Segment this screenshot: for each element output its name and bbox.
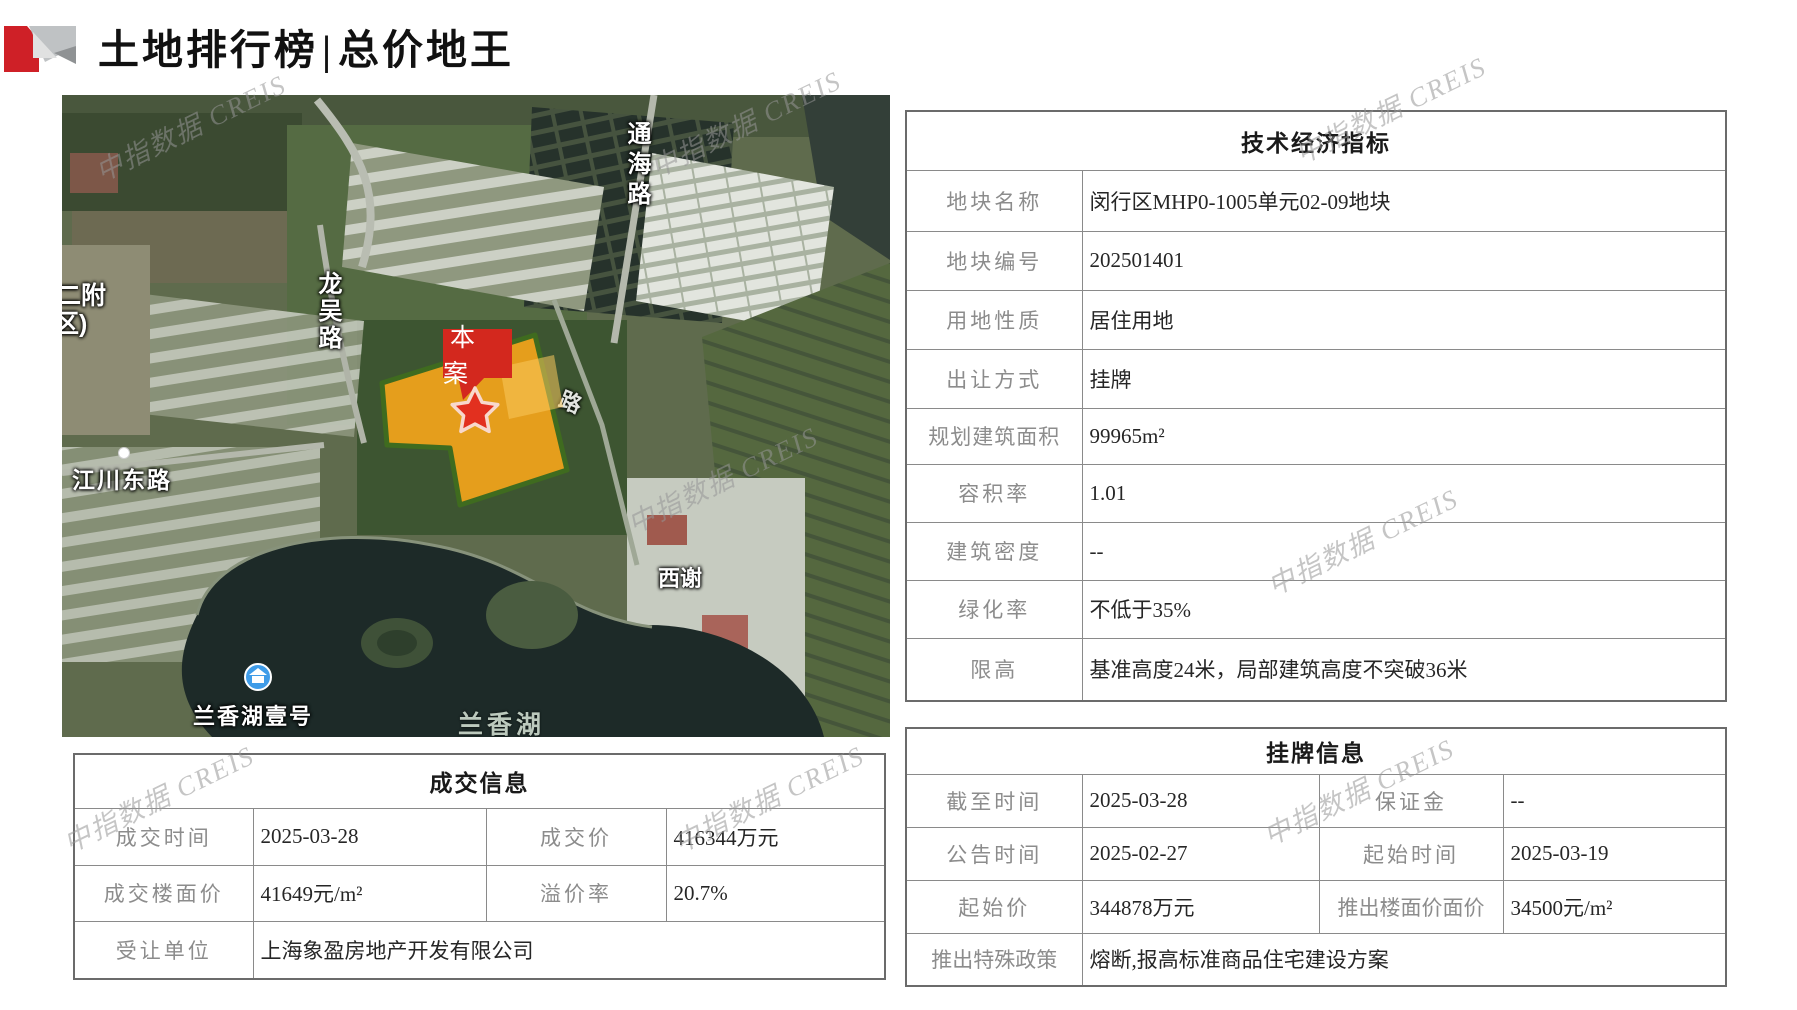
small-poi-dot-icon	[119, 448, 130, 459]
tech-indicator-table: 技术经济指标 地块名称闵行区MHP0-1005单元02-09地块 地块编号202…	[905, 110, 1727, 702]
tech-row-label: 地块名称	[906, 170, 1082, 231]
map-overlay	[62, 95, 890, 737]
listing-row-label: 推出特殊政策	[906, 933, 1082, 986]
tech-row-label: 出让方式	[906, 349, 1082, 408]
deal-row-label: 成交价	[486, 808, 666, 865]
deal-row-label: 受让单位	[74, 921, 253, 979]
listing-row-value: 2025-03-28	[1082, 774, 1319, 827]
tech-row-label: 容积率	[906, 464, 1082, 522]
title-part1: 土地排行榜	[98, 27, 318, 73]
tech-row-label: 绿化率	[906, 580, 1082, 638]
listing-row-value: 344878万元	[1082, 880, 1319, 933]
report-slide: 土地排行榜|总价地王	[0, 0, 1797, 1010]
listing-row-value: --	[1503, 774, 1726, 827]
deal-row-label: 溢价率	[486, 865, 666, 921]
listing-info-table: 挂牌信息 截至时间 2025-03-28 保证金 -- 公告时间 2025-02…	[905, 727, 1727, 987]
deal-table-title: 成交信息	[74, 754, 885, 808]
lake-poi-icon	[245, 664, 271, 690]
deal-row-value: 416344万元	[666, 808, 885, 865]
page-title: 土地排行榜|总价地王	[98, 16, 514, 76]
tech-row-value: 不低于35%	[1082, 580, 1726, 638]
listing-row-label: 起始价	[906, 880, 1082, 933]
listing-row-value: 2025-02-27	[1082, 827, 1319, 880]
title-part2: 总价地王	[338, 27, 514, 73]
deal-row-value: 20.7%	[666, 865, 885, 921]
tech-row-value: 基准高度24米，局部建筑高度不突破36米	[1082, 638, 1726, 701]
tech-row-value: 202501401	[1082, 231, 1726, 290]
tech-row-value: --	[1082, 522, 1726, 580]
deal-row-label: 成交楼面价	[74, 865, 253, 921]
listing-row-value: 34500元/m²	[1503, 880, 1726, 933]
tech-row-value: 闵行区MHP0-1005单元02-09地块	[1082, 170, 1726, 231]
tech-row-value: 挂牌	[1082, 349, 1726, 408]
creis-logo-icon	[4, 22, 96, 76]
tech-row-label: 用地性质	[906, 290, 1082, 349]
deal-row-value: 2025-03-28	[253, 808, 486, 865]
listing-row-label: 公告时间	[906, 827, 1082, 880]
tech-row-value: 1.01	[1082, 464, 1726, 522]
title-divider: |	[318, 27, 338, 73]
tech-row-label: 规划建筑面积	[906, 408, 1082, 464]
listing-row-label: 保证金	[1319, 774, 1503, 827]
satellite-map: 通海路 龙吴路 江川东路 二附 区) 西谢 兰香湖壹号 兰香湖 路 本案	[62, 95, 890, 737]
tech-row-value: 99965m²	[1082, 408, 1726, 464]
listing-row-label: 起始时间	[1319, 827, 1503, 880]
listing-row-value: 熔断,报高标准商品住宅建设方案	[1082, 933, 1726, 986]
deal-info-table: 成交信息 成交时间 2025-03-28 成交价 416344万元 成交楼面价 …	[73, 753, 886, 980]
site-marker-tag: 本案	[443, 329, 512, 378]
deal-row-value: 41649元/m²	[253, 865, 486, 921]
tech-row-label: 建筑密度	[906, 522, 1082, 580]
tech-row-label: 地块编号	[906, 231, 1082, 290]
tech-row-label: 限高	[906, 638, 1082, 701]
listing-table-title: 挂牌信息	[906, 728, 1726, 774]
listing-row-value: 2025-03-19	[1503, 827, 1726, 880]
deal-row-value: 上海象盈房地产开发有限公司	[253, 921, 885, 979]
deal-row-label: 成交时间	[74, 808, 253, 865]
tech-table-title: 技术经济指标	[906, 111, 1726, 170]
listing-row-label: 推出楼面价面价	[1319, 880, 1503, 933]
tech-row-value: 居住用地	[1082, 290, 1726, 349]
listing-row-label: 截至时间	[906, 774, 1082, 827]
